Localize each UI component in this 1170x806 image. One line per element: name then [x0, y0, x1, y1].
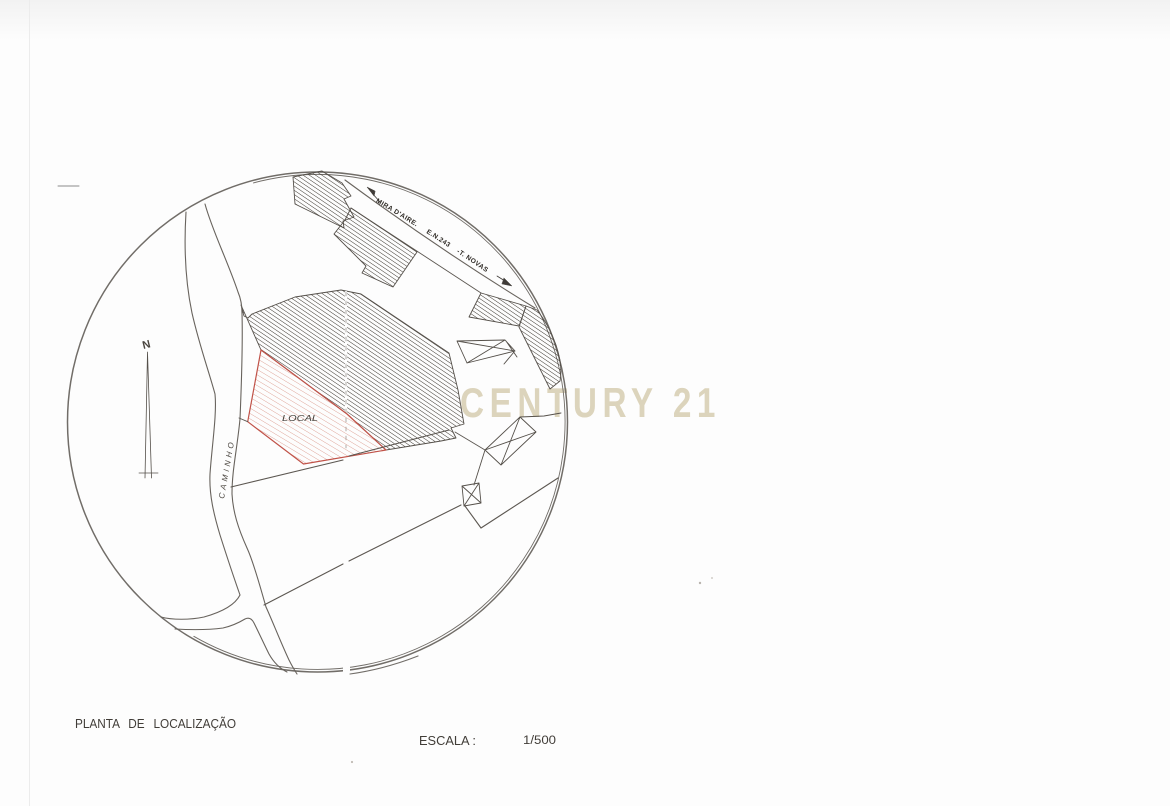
- svg-text:LOCAL: LOCAL: [282, 413, 318, 423]
- svg-text:CENTURY 21: CENTURY 21: [460, 379, 721, 426]
- svg-text:N: N: [141, 338, 152, 352]
- svg-text:1/500: 1/500: [523, 733, 556, 747]
- svg-text:PLANTA DE LOCALIZAÇÃO: PLANTA DE LOCALIZAÇÃO: [75, 717, 236, 731]
- svg-text:ESCALA :: ESCALA :: [419, 734, 476, 748]
